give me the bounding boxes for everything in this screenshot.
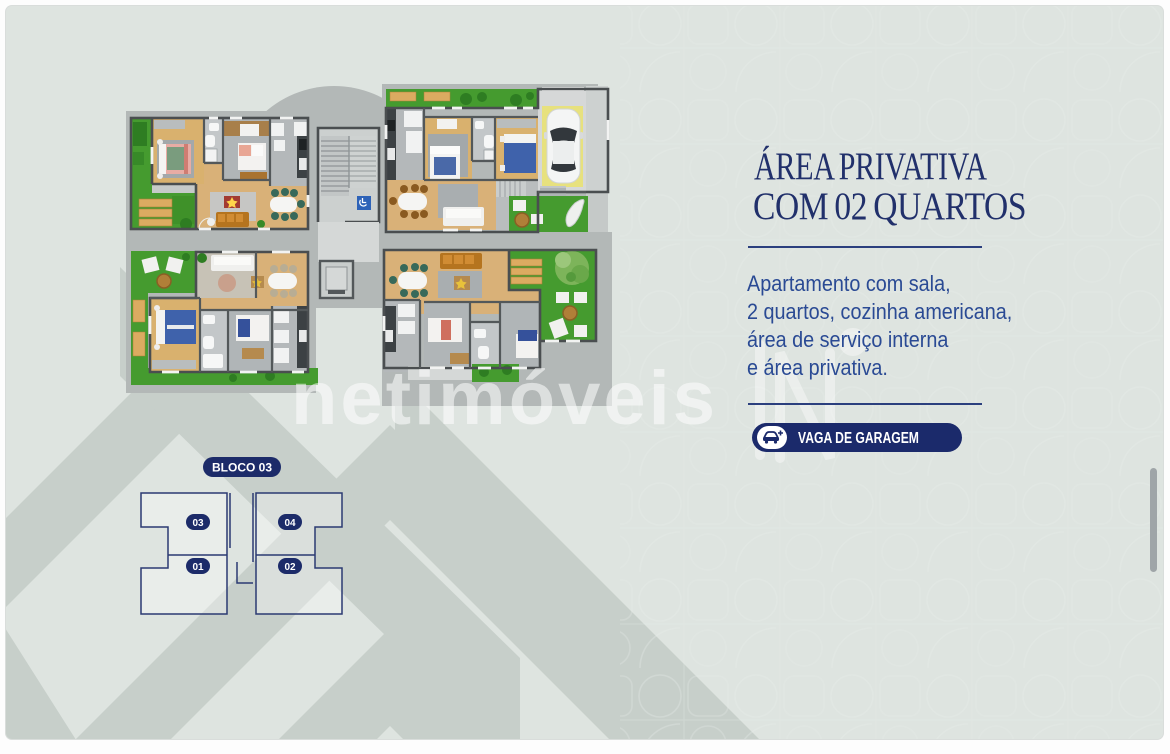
svg-text:04: 04 xyxy=(284,518,296,529)
svg-text:BLOCO 03: BLOCO 03 xyxy=(212,461,272,475)
svg-text:02: 02 xyxy=(284,562,296,573)
svg-text:01: 01 xyxy=(192,562,204,573)
svg-text:netimóveis: netimóveis xyxy=(291,356,718,441)
svg-text:03: 03 xyxy=(192,518,204,529)
